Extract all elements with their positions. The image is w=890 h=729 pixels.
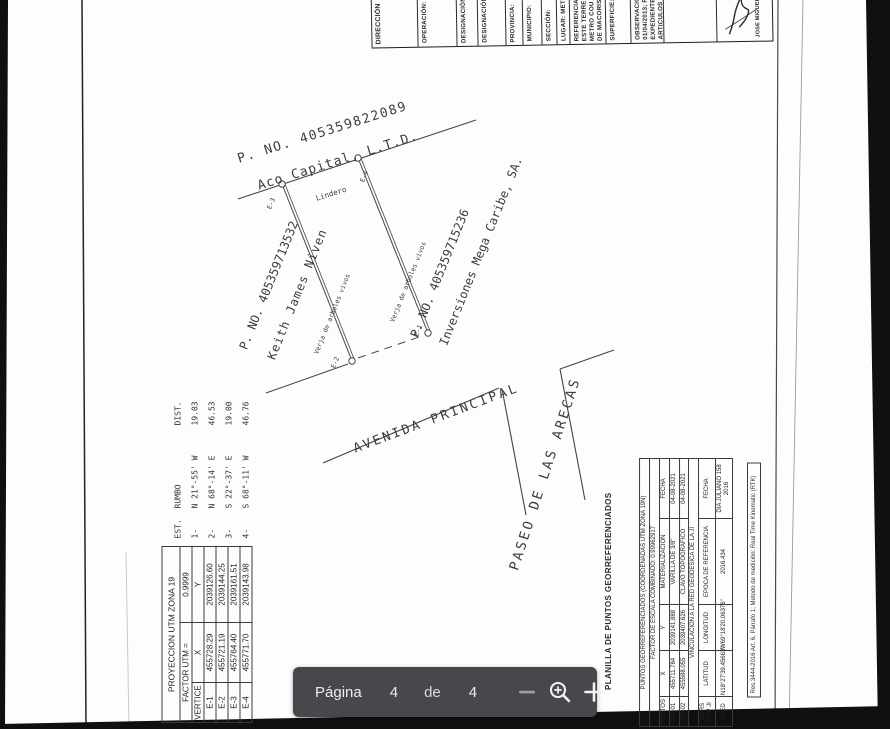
utm-header: VERTICE	[192, 683, 204, 723]
bearings-header: EST.	[170, 510, 187, 540]
table-row: E-2455721.192039144.25	[216, 546, 228, 722]
utm-factor-label: FACTOR UTM =	[180, 623, 192, 723]
titleblock-cell-signature: JOSE MIGUEL	[715, 0, 768, 41]
bearings-header: RUMBO	[170, 427, 187, 510]
plus-icon	[581, 679, 607, 705]
titleblock-cell-direccion: DIRECCIÓN	[370, 0, 417, 48]
titleblock-cell-designacion-2: DESIGNACIÓN:	[476, 0, 505, 46]
utm-title: PROYECCION UTM ZONA 19	[162, 546, 180, 722]
table-row: 4-S 68°-11' W46.76	[238, 385, 255, 540]
table-row: E-4455771.702039143.98	[240, 546, 252, 722]
georef-side-title: PLANILLA DE PUNTOS GEORREFERENCIADOS	[604, 462, 613, 690]
georef-header2: LATITUD	[699, 651, 716, 697]
titleblock-cell-seccion: SECCIÓN:	[540, 0, 556, 45]
titleblock-cell-provincia: PROVINCIA:	[504, 0, 522, 45]
georef-header: Y	[659, 605, 669, 651]
georef-header2: EPOCA DE REFERENCIA	[699, 519, 716, 605]
utm-header: Y	[192, 546, 204, 622]
document-page: P. NO. 405359822089 Aco Capital, L.T.D. …	[0, 0, 890, 729]
utm-factor-value: 0.9999	[180, 546, 192, 622]
georef-header2: LONGITUD	[699, 605, 716, 651]
titleblock-cell-referencia: REFERENCIA: ESTE TERRE METRO COU DE MACO…	[568, 0, 605, 44]
table-row: 3-S 22°-37' E19.00	[221, 385, 238, 540]
title-block: DIRECCIÓN OPERACIÓN: DESIGNACIÓN: DESIGN…	[370, 0, 773, 49]
table-row: PG-02455588.0552039407.626CLAVO TOPOGRAF…	[679, 458, 689, 726]
georef-header2: FECHA	[699, 458, 716, 518]
georef-link-row: VINCULACION A LA RED GEODESICA DE LA JI	[689, 458, 699, 726]
method-note: Res.3444-2016 Art. 6, Párrafo 1; Metodo …	[747, 463, 761, 698]
georef-header: MATERIALIZACION	[659, 519, 669, 605]
zoom-in-button[interactable]	[581, 675, 607, 709]
titleblock-cell-operacion: OPERACIÓN:	[416, 0, 456, 47]
utm-header: X	[192, 623, 204, 683]
titleblock-cell-superficie: SUPERFICIE:	[604, 0, 630, 43]
minus-icon	[515, 680, 539, 704]
page-label: Página	[315, 684, 362, 701]
total-pages: 4	[469, 684, 477, 701]
pdf-viewer-toolbar: Página 4 de 4	[293, 667, 597, 717]
georef-scale: FACTOR DE ESCALA COMBINADO: 0.99962917	[649, 458, 659, 726]
page-of-label: de	[424, 684, 441, 701]
titleblock-cell-observaciones: OBSERVACIO 01/04/2013; R EXPEDIENTE ARTI…	[629, 0, 663, 43]
current-page-field[interactable]: 4	[390, 684, 398, 701]
titleblock-cell-municipio: MUNICIPIO:	[521, 0, 541, 45]
table-row: 1-N 21°-55' W19.03	[187, 385, 204, 540]
titleblock-cell-empty	[662, 0, 716, 42]
zoom-out-button[interactable]	[515, 675, 539, 709]
magnifier-plus-icon	[547, 679, 573, 705]
titleblock-cell-lugar: LUGAR: MET	[555, 0, 569, 44]
signature-name: JOSE MIGUEL	[755, 0, 763, 38]
table-row: SPEDN18°27'39.45663"W69°18'20.06376"2016…	[716, 458, 733, 726]
bearings-header: DIST.	[170, 385, 187, 427]
georef-header: FECHA	[659, 458, 669, 518]
georef-header: PUNTOS	[659, 697, 669, 727]
georef-header: X	[659, 651, 669, 697]
georef-title: PUNTOS GEORREFERENCIADOS (COORDENADAS UT…	[640, 458, 650, 726]
georef-header2: CORS REP JI	[699, 697, 716, 727]
table-row: E-3455764.402039161.51	[228, 546, 240, 722]
zoom-tool-button[interactable]	[547, 675, 573, 709]
table-row: 2-N 68°-14' E46.53	[204, 385, 221, 540]
table-row: PG-01455711.7842039141.888VARILLA DE 3/8…	[669, 458, 679, 726]
titleblock-cell-designacion-1: DESIGNACIÓN:	[455, 0, 477, 46]
table-row: E-1455728.292039126.60	[204, 546, 216, 722]
